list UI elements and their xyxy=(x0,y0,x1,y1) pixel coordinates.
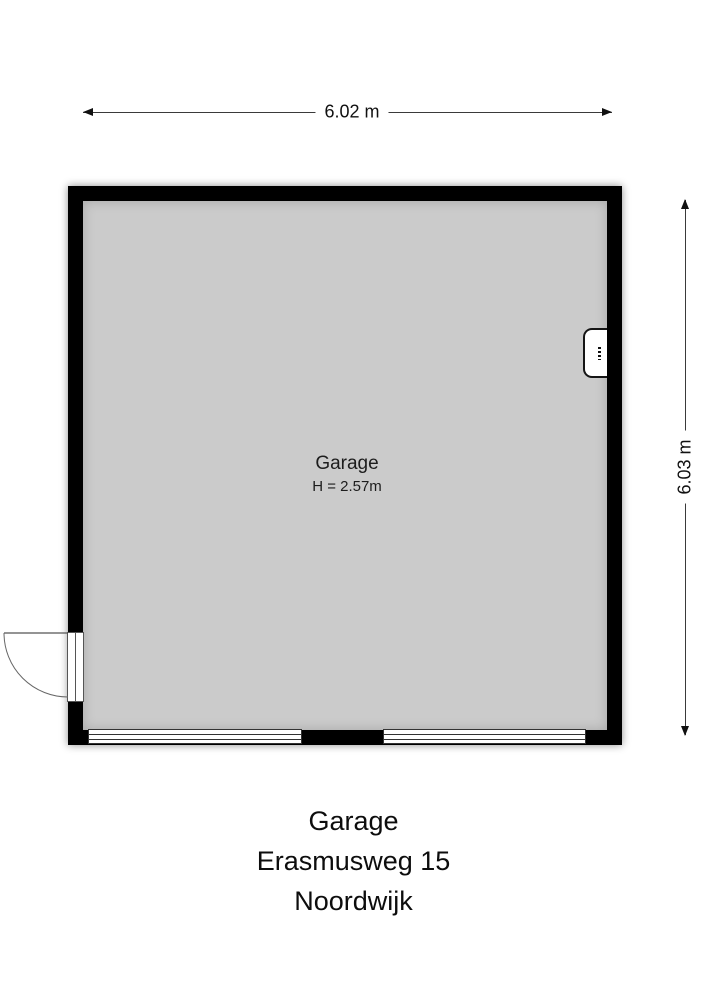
boiler-unit-icon xyxy=(583,328,607,378)
caption-city: Noordwijk xyxy=(0,881,707,921)
door-frame xyxy=(67,632,84,702)
window xyxy=(383,729,586,744)
garage-room-outline xyxy=(68,186,622,745)
caption: Garage Erasmusweg 15 Noordwijk xyxy=(0,801,707,921)
height-dimension-label: 6.03 m xyxy=(675,430,696,503)
boiler-vent-icon xyxy=(598,347,601,360)
arrow-left-icon xyxy=(83,108,93,116)
arrow-right-icon xyxy=(602,108,612,116)
window xyxy=(88,729,302,744)
window-glass-icon xyxy=(89,734,301,740)
window-glass-icon xyxy=(384,734,585,740)
caption-title: Garage xyxy=(0,801,707,841)
floorplan-page: 6.02 m 6.03 m Garage H = 2.57m Garage Er… xyxy=(0,0,707,1000)
caption-address: Erasmusweg 15 xyxy=(0,841,707,881)
arrow-down-icon xyxy=(681,726,689,736)
width-dimension-label: 6.02 m xyxy=(315,102,388,123)
arrow-up-icon xyxy=(681,199,689,209)
